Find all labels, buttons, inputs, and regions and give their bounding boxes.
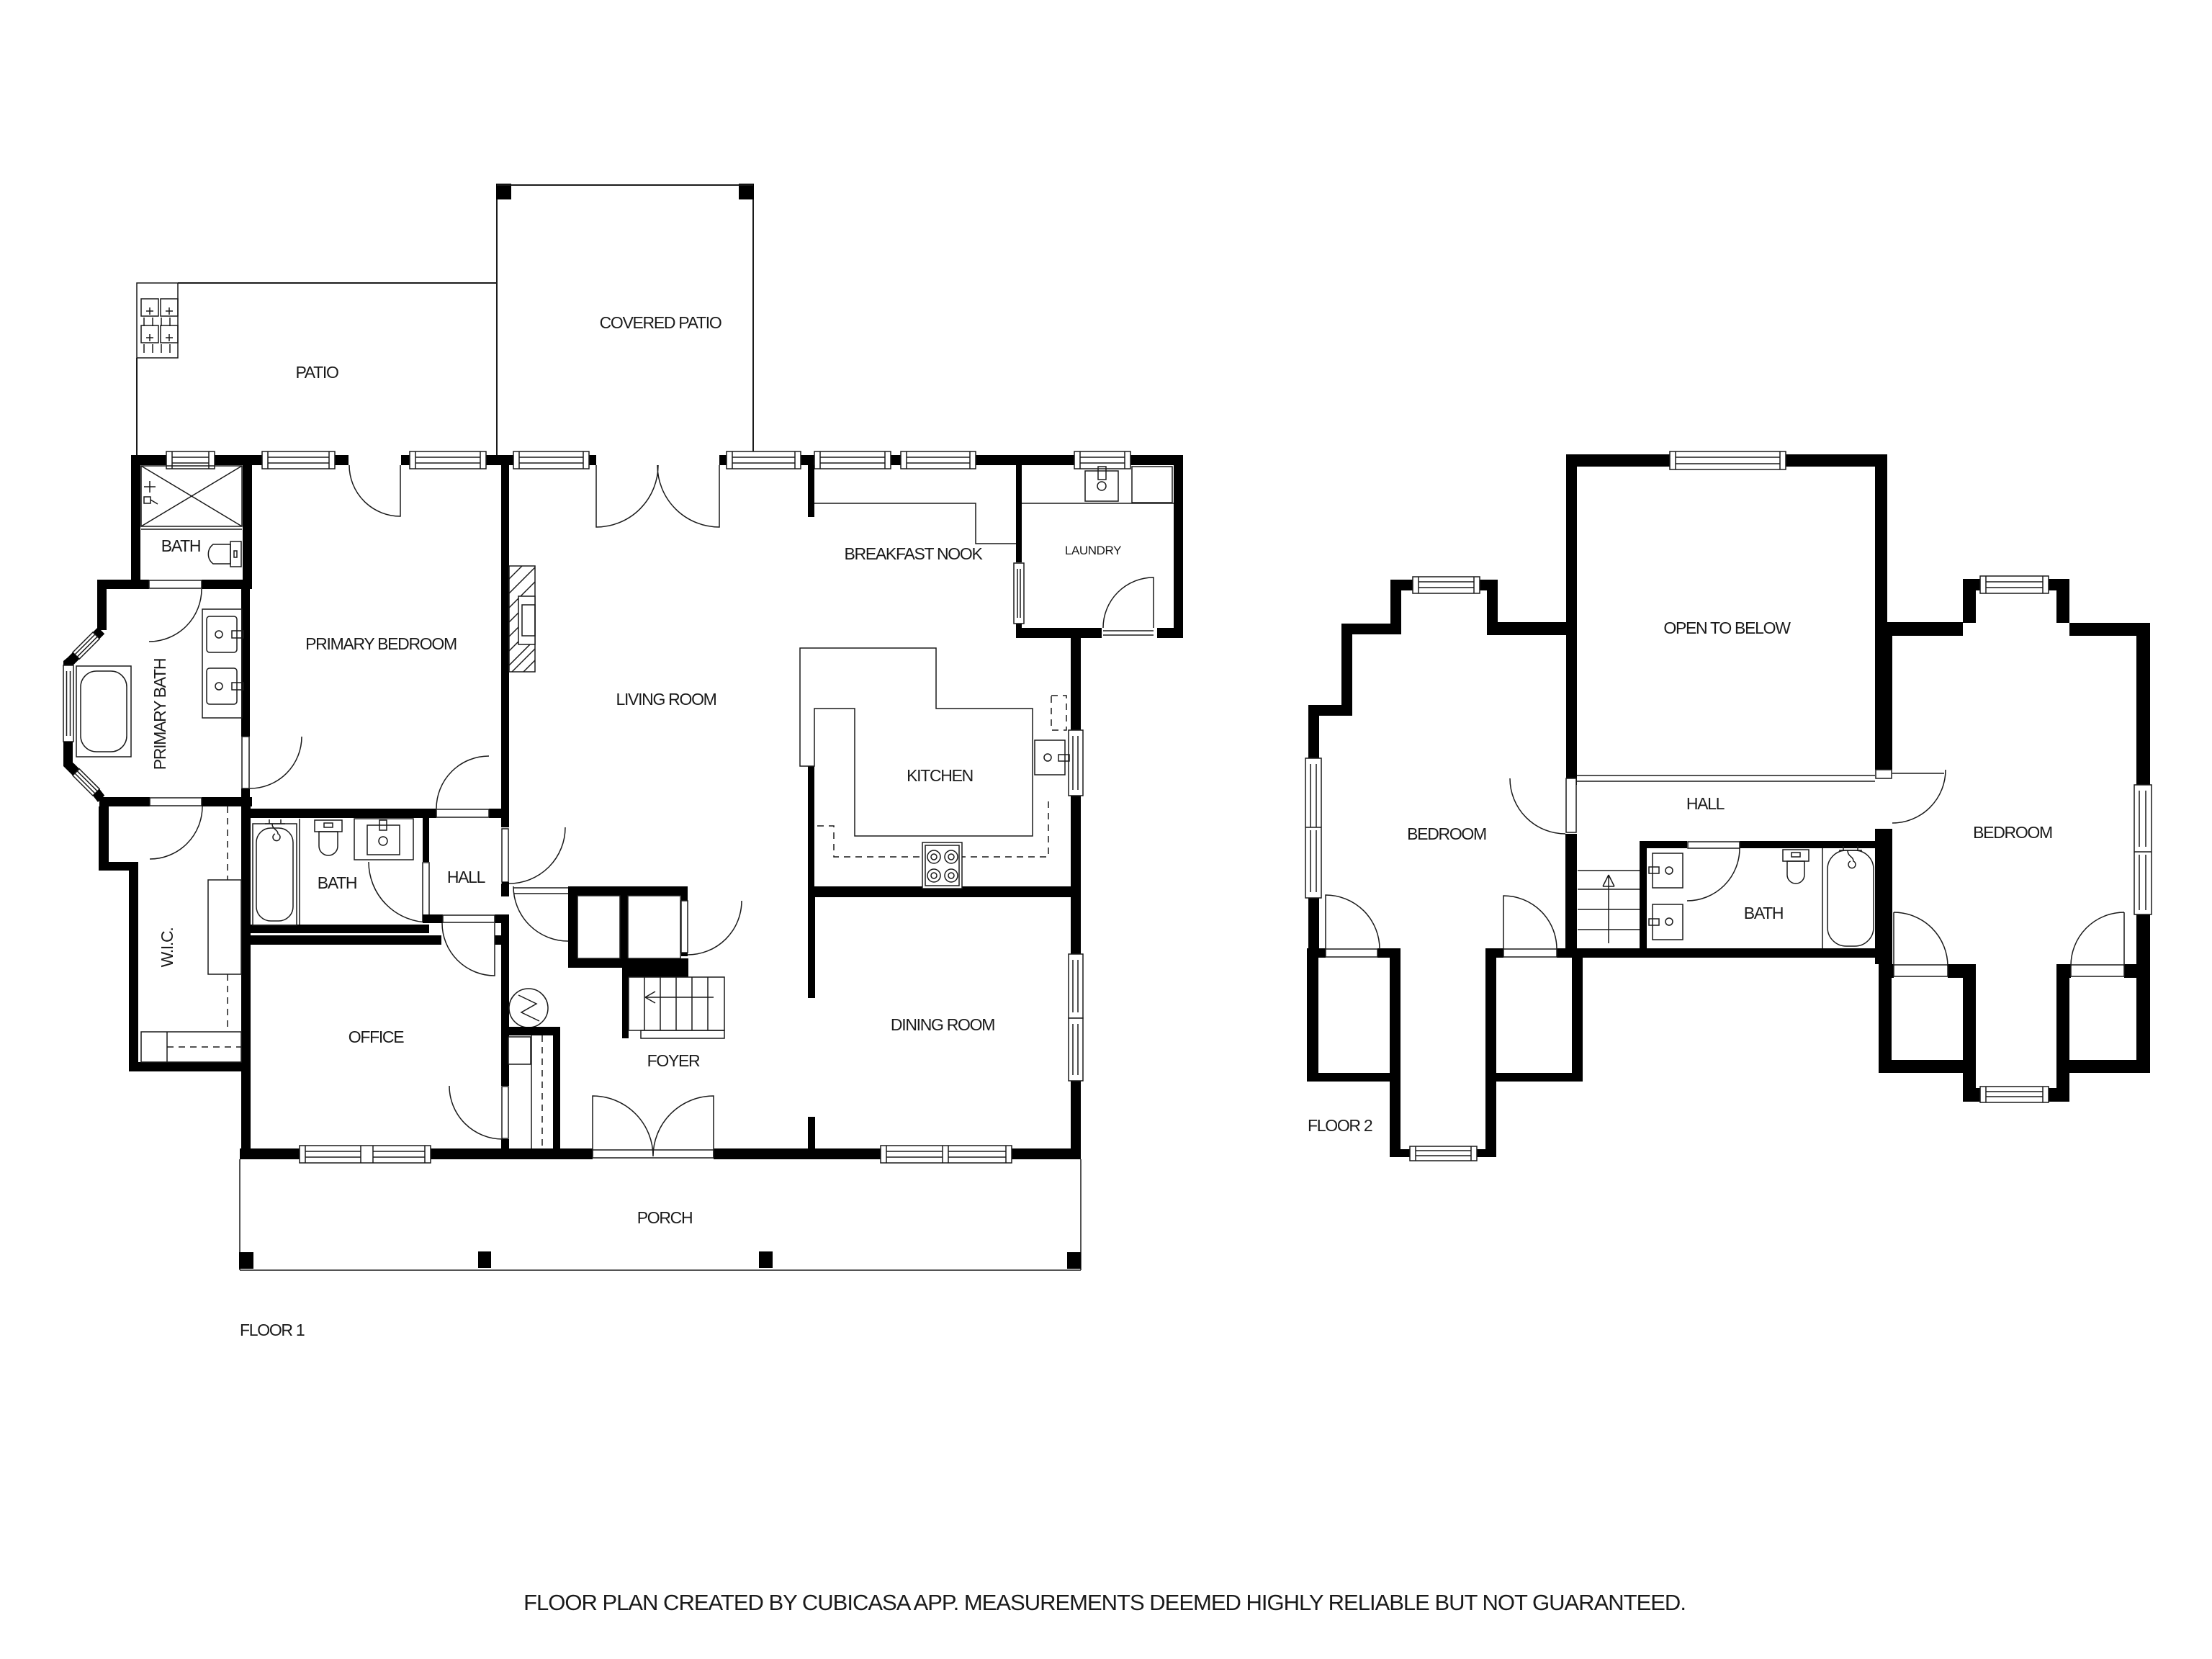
svg-text:PORCH: PORCH [637,1208,693,1227]
svg-text:FLOOR PLAN CREATED BY CUBICASA: FLOOR PLAN CREATED BY CUBICASA APP. MEAS… [523,1590,1686,1615]
svg-text:LAUNDRY: LAUNDRY [1065,544,1121,557]
svg-text:BEDROOM: BEDROOM [1973,823,2052,842]
svg-text:OPEN TO BELOW: OPEN TO BELOW [1663,619,1791,637]
svg-text:KITCHEN: KITCHEN [907,766,973,785]
svg-text:BATH: BATH [318,873,356,892]
svg-text:FOYER: FOYER [647,1051,700,1070]
svg-text:COVERED PATIO: COVERED PATIO [600,313,721,332]
svg-text:BATH: BATH [1744,904,1783,922]
svg-text:PRIMARY BATH: PRIMARY BATH [150,659,169,770]
svg-text:PRIMARY BEDROOM: PRIMARY BEDROOM [305,634,457,653]
svg-text:BREAKFAST NOOK: BREAKFAST NOOK [845,544,984,563]
svg-text:BEDROOM: BEDROOM [1407,824,1486,843]
svg-text:FLOOR 2: FLOOR 2 [1308,1116,1372,1135]
svg-text:HALL: HALL [447,868,486,886]
svg-text:W.I.C.: W.I.C. [158,928,176,968]
svg-text:HALL: HALL [1686,794,1725,813]
svg-text:FLOOR 1: FLOOR 1 [240,1321,305,1339]
svg-text:OFFICE: OFFICE [349,1028,404,1046]
svg-text:BATH: BATH [161,536,200,555]
svg-text:LIVING ROOM: LIVING ROOM [616,690,716,709]
svg-text:DINING ROOM: DINING ROOM [891,1015,994,1034]
svg-text:PATIO: PATIO [295,363,338,382]
